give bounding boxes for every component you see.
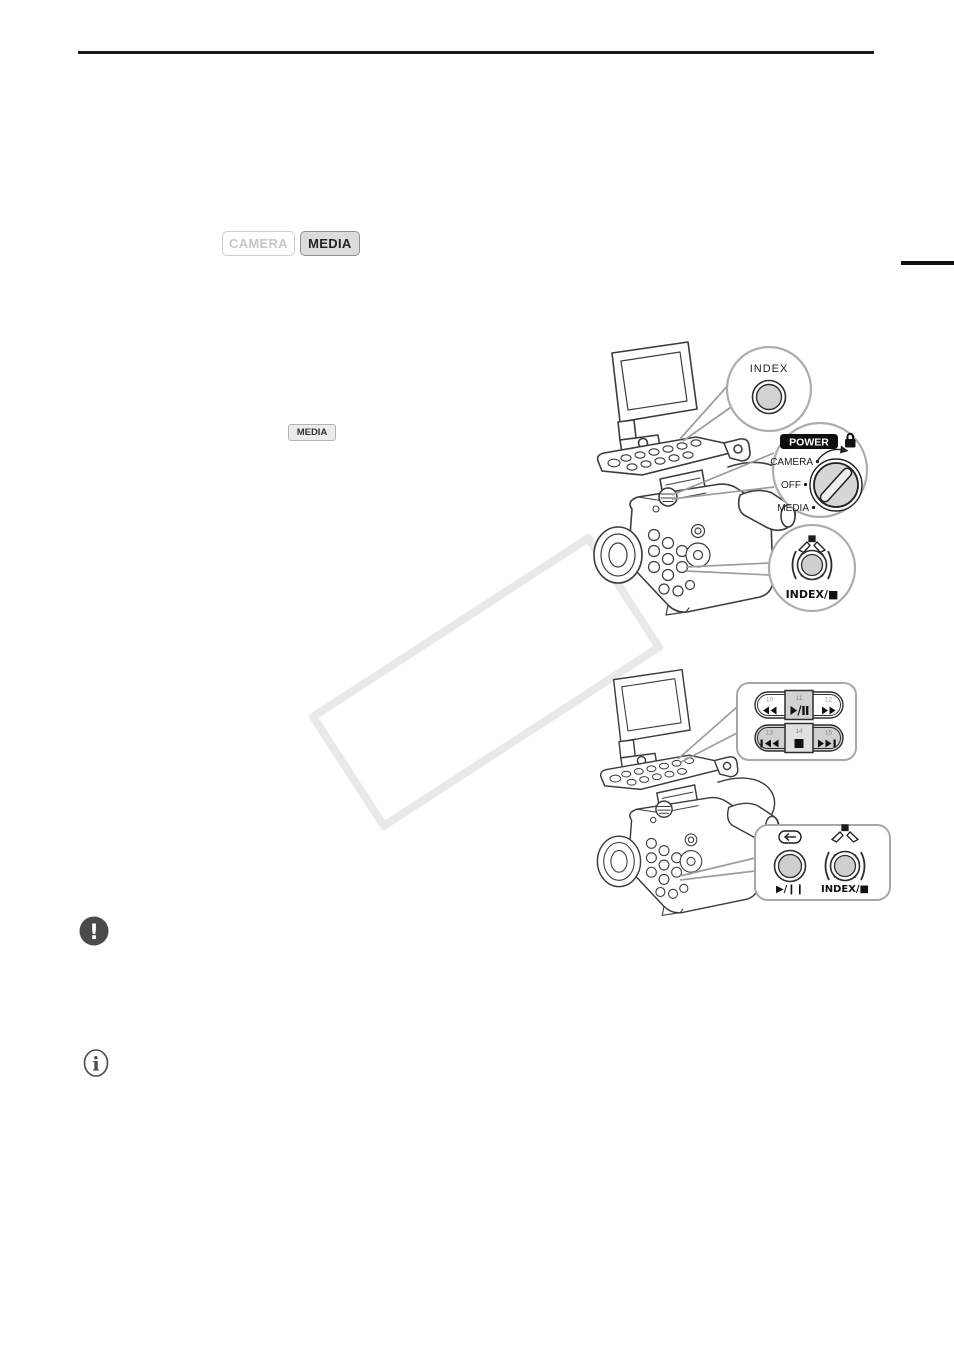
camera-mode-badge: CAMERA [222,231,295,256]
media-position-dot [812,506,815,509]
inline-media-badge: MEDIA [288,424,336,441]
important-icon: ! [76,913,116,953]
camera-illustration-2: 10 11 12 13 [560,665,954,925]
manual-page: CAMERA MEDIA MEDIA [0,0,954,1348]
page-edge-mark [901,261,954,265]
index-button-label: INDEX [750,363,789,375]
power-switch-callout: POWER CAMERA OFF MEDIA [770,423,867,517]
body-buttons-callout: ▶/❙❙ INDEX/■ [755,825,890,900]
review-arrow-icon [779,831,801,843]
button-number: 10 [766,697,774,704]
play-pause-label: ▶/❙❙ [776,884,804,895]
camera-position-dot [816,460,819,463]
off-position-dot [804,483,807,486]
power-badge-label: POWER [789,437,829,449]
index-stop-label: INDEX/■ [821,884,869,895]
button-number: 13 [766,730,774,737]
index-stop-callout: INDEX/■ [769,525,855,611]
index-button-callout: INDEX [727,347,811,431]
power-dial-icon [810,459,862,511]
camera-illustration-1: INDEX POWER CAMERA OFF MEDIA [560,335,954,625]
exclamation-glyph: ! [89,920,99,944]
power-position-media: MEDIA [777,503,809,514]
playback-row2: 13 14 15 [755,724,843,753]
playback-row1: 10 11 12 [755,691,843,720]
play-pause-button-icon [775,851,806,882]
media-mode-badge: MEDIA [300,231,360,256]
button-number: 14 [795,728,803,735]
playback-buttons-callout: 10 11 12 13 [737,683,856,760]
top-rule [78,51,874,54]
power-position-camera: CAMERA [770,457,813,468]
stop-icon [795,739,804,748]
index-button-icon [753,381,786,414]
index-stop-label: INDEX/■ [786,588,839,601]
button-number: 15 [825,730,833,737]
info-icon: i [80,1046,116,1084]
info-glyph: i [92,1054,99,1076]
button-number: 11 [796,695,803,702]
button-number: 12 [825,697,833,704]
power-position-off: OFF [781,480,801,491]
mode-badges: CAMERA MEDIA [222,231,360,256]
